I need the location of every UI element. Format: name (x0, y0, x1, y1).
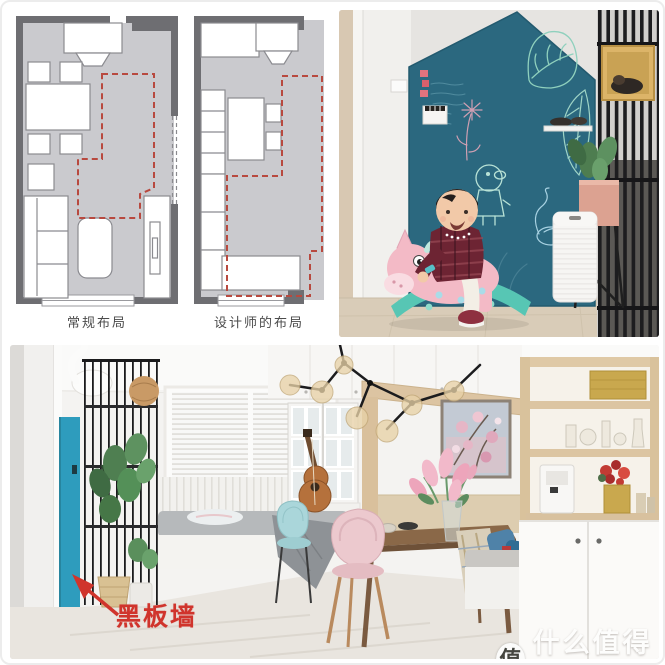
floorplan-designer (194, 16, 324, 306)
chalk-tray (423, 106, 447, 124)
wood-shelf-unit (520, 357, 659, 523)
plan-label-designer: 设计师的布局 (197, 312, 321, 331)
wood-box-shelf (602, 46, 654, 100)
chalkboard-photo (339, 10, 659, 337)
hallway-strip (339, 10, 355, 337)
light-switch (391, 80, 407, 92)
child-face (436, 189, 478, 231)
floorplan-drawing (10, 10, 325, 337)
radiator (160, 477, 292, 513)
chalkboard-wall-annotation: 黑板墙 (116, 597, 197, 633)
living-room-drawing (10, 345, 659, 659)
water-dispenser (540, 465, 574, 513)
floorplan-conventional (16, 16, 178, 306)
air-purifier (553, 212, 597, 302)
smzdm-watermark: 值 什么值得买 (496, 621, 659, 659)
smzdm-badge-icon: 值 (496, 643, 525, 659)
collage-root: 常规布局 设计师的布局 (0, 0, 665, 665)
gold-box (590, 371, 646, 399)
floorplan-panel: 常规布局 设计师的布局 (10, 10, 325, 337)
plan-label-conventional: 常规布局 (37, 312, 157, 331)
living-room-photo: 黑板墙 值 什么值得买 (10, 345, 659, 659)
chalkboard-photo-drawing (339, 10, 659, 337)
smzdm-site-name: 什么值得买 (533, 621, 659, 659)
